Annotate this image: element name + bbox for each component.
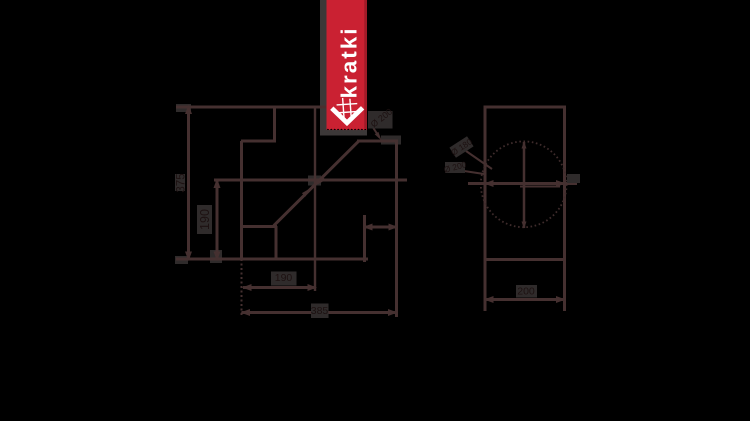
svg-text:200: 200 <box>517 286 535 298</box>
svg-text:190: 190 <box>198 209 212 230</box>
svg-text:375: 375 <box>176 173 188 192</box>
svg-text:kratki: kratki <box>336 26 361 98</box>
svg-text:385: 385 <box>311 305 329 317</box>
svg-text:190: 190 <box>275 272 293 284</box>
